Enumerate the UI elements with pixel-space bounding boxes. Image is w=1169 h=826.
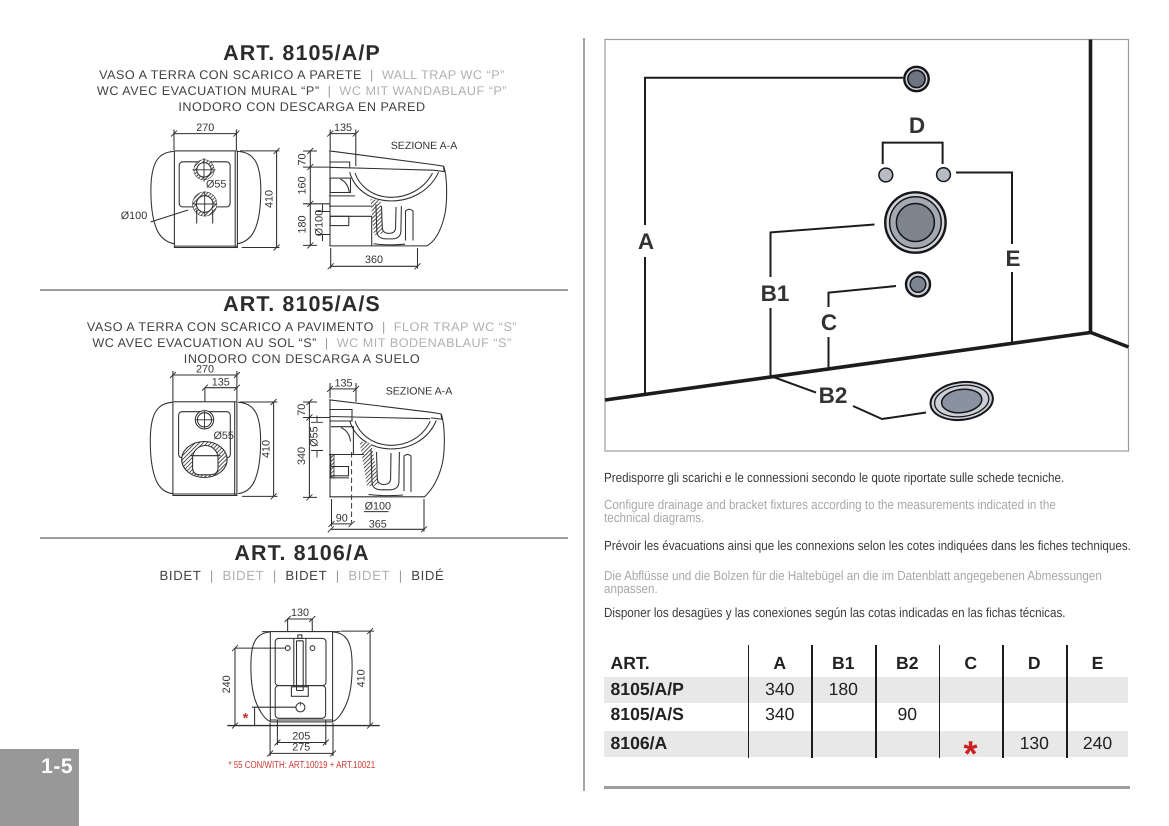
svg-text:Ø55: Ø55 [308,426,320,446]
svg-text:410: 410 [356,669,368,687]
svg-text:C: C [821,310,837,335]
svg-text:270: 270 [196,122,214,134]
svg-text:A: A [638,229,654,254]
svg-text:130: 130 [291,607,309,619]
svg-text:D: D [909,113,925,138]
svg-text:275: 275 [292,742,310,754]
svg-text:SEZIONE A-A: SEZIONE A-A [391,140,458,152]
svg-text:Ø100: Ø100 [365,500,391,512]
svg-text:410: 410 [261,440,273,458]
svg-text:205: 205 [292,730,310,742]
svg-text:B1: B1 [761,281,790,306]
svg-text:365: 365 [369,518,387,530]
svg-text:180: 180 [297,215,309,233]
svg-text:135: 135 [334,377,352,389]
svg-text:70: 70 [296,404,308,416]
svg-text:160: 160 [297,176,309,194]
svg-text:Ø100: Ø100 [121,210,147,222]
svg-text:B2: B2 [819,383,848,408]
svg-text:135: 135 [334,122,352,134]
svg-text:90: 90 [336,513,348,525]
svg-text:Ø55: Ø55 [214,430,234,442]
svg-text:*: * [243,711,249,727]
svg-text:SEZIONE A-A: SEZIONE A-A [386,386,453,398]
svg-text:410: 410 [264,190,276,208]
svg-text:340: 340 [296,447,308,465]
svg-text:270: 270 [196,364,214,376]
svg-text:240: 240 [221,675,233,693]
svg-text:70: 70 [297,153,309,165]
svg-text:135: 135 [212,376,230,388]
svg-text:E: E [1005,246,1020,271]
svg-text:360: 360 [365,254,383,266]
svg-text:Ø100: Ø100 [314,210,326,236]
svg-text:Ø55: Ø55 [206,178,226,190]
